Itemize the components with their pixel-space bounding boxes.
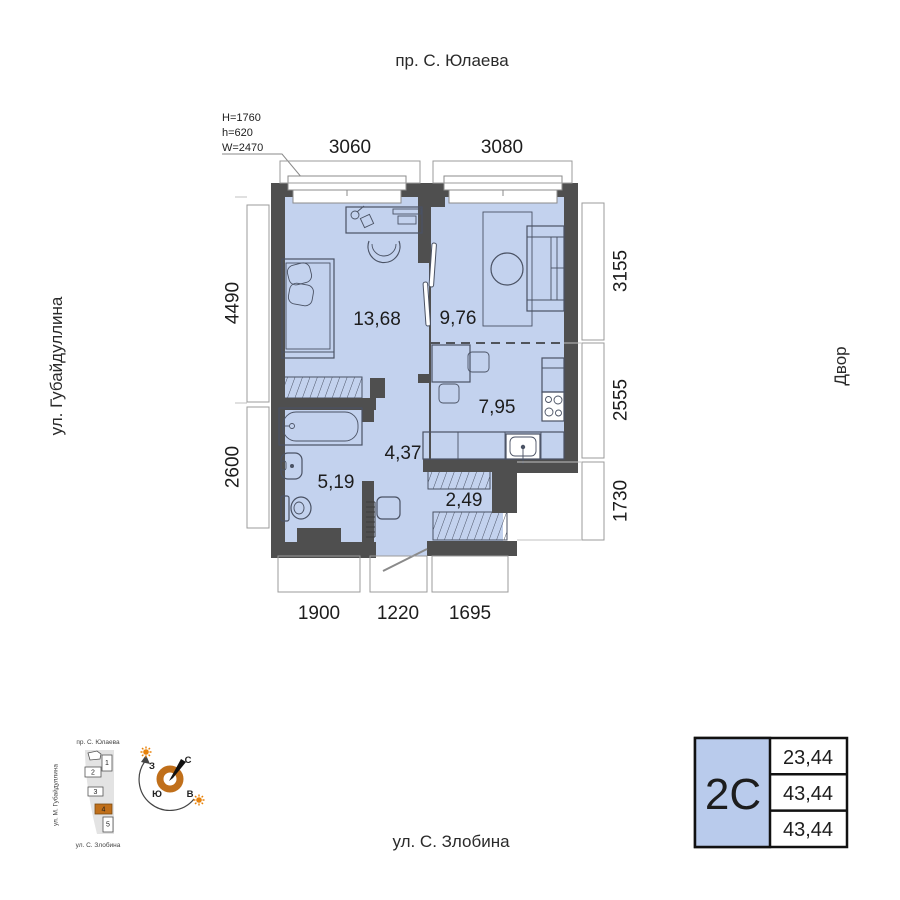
street-label-left: ул. Губайдуллина: [47, 296, 66, 435]
floorplan-page: пр. С. Юлаева ул. Губайдуллина Двор ул. …: [0, 0, 900, 900]
street-label-right: Двор: [831, 346, 850, 385]
dim-right-3: 1730: [611, 480, 632, 522]
site-street-top: пр. С. Юлаева: [76, 739, 120, 746]
site-building-blob: [88, 751, 101, 760]
compass-south-label: Ю: [152, 789, 162, 800]
area-label-hallway: 4,37: [385, 443, 422, 464]
area-label-closet: 2,49: [446, 490, 483, 511]
site-building-5-label: 5: [106, 822, 110, 829]
dim-top-2: 3080: [481, 137, 523, 158]
area-label-living: 9,76: [440, 308, 477, 329]
window-2: [444, 176, 562, 203]
site-street-left: ул. М. Губайдуллина: [51, 764, 59, 826]
compass: З С Ю В: [139, 747, 204, 811]
dim-right-1: 3155: [611, 250, 632, 292]
dim-bottom-1: 1900: [298, 603, 340, 624]
sun-icon: [194, 795, 205, 806]
site-building-1-label: 1: [105, 760, 109, 767]
unit-info-table: 2С 23,44 43,44 43,44: [695, 738, 847, 847]
window-annotation-line2: h=620: [222, 127, 253, 139]
site-street-bottom: ул. С. Злобина: [76, 841, 121, 849]
window-annotation-line3: W=2470: [222, 142, 263, 154]
area-label-kitchen: 7,95: [479, 397, 516, 418]
dim-left-2: 2600: [223, 446, 244, 488]
compass-east-label: В: [187, 789, 194, 800]
closet-hatch-bottom: [433, 512, 507, 540]
unit-type-label: 2С: [705, 770, 761, 819]
street-label-top: пр. С. Юлаева: [395, 51, 509, 70]
site-building-4-label: 4: [102, 807, 106, 814]
compass-north-label: С: [185, 755, 192, 766]
info-value-2: 43,44: [783, 783, 833, 805]
dim-top-1: 3060: [329, 137, 371, 158]
info-value-3: 43,44: [783, 819, 833, 841]
site-building-2-label: 2: [91, 770, 95, 777]
sun-icon: [141, 747, 152, 758]
kitchen-sink: [506, 434, 540, 464]
compass-west-label: З: [149, 761, 155, 772]
bedroom-wardrobe-hatch: [284, 377, 362, 398]
dim-left-1: 4490: [223, 282, 244, 324]
dim-right-2: 2555: [611, 379, 632, 421]
info-value-1: 23,44: [783, 747, 833, 769]
stove: [542, 392, 564, 421]
site-plan: пр. С. Юлаева ул. М. Губайдуллина ул. С.…: [51, 739, 120, 849]
street-label-bottom: ул. С. Злобина: [392, 832, 510, 851]
floorplan-canvas: пр. С. Юлаева ул. Губайдуллина Двор ул. …: [0, 0, 900, 900]
area-label-bathroom: 5,19: [318, 472, 355, 493]
dim-bottom-2: 1220: [377, 603, 419, 624]
dim-bottom-3: 1695: [449, 603, 491, 624]
window-annotation-line1: H=1760: [222, 112, 261, 124]
window-1: [288, 176, 406, 203]
area-label-bedroom: 13,68: [353, 309, 401, 330]
site-building-3-label: 3: [94, 789, 98, 796]
